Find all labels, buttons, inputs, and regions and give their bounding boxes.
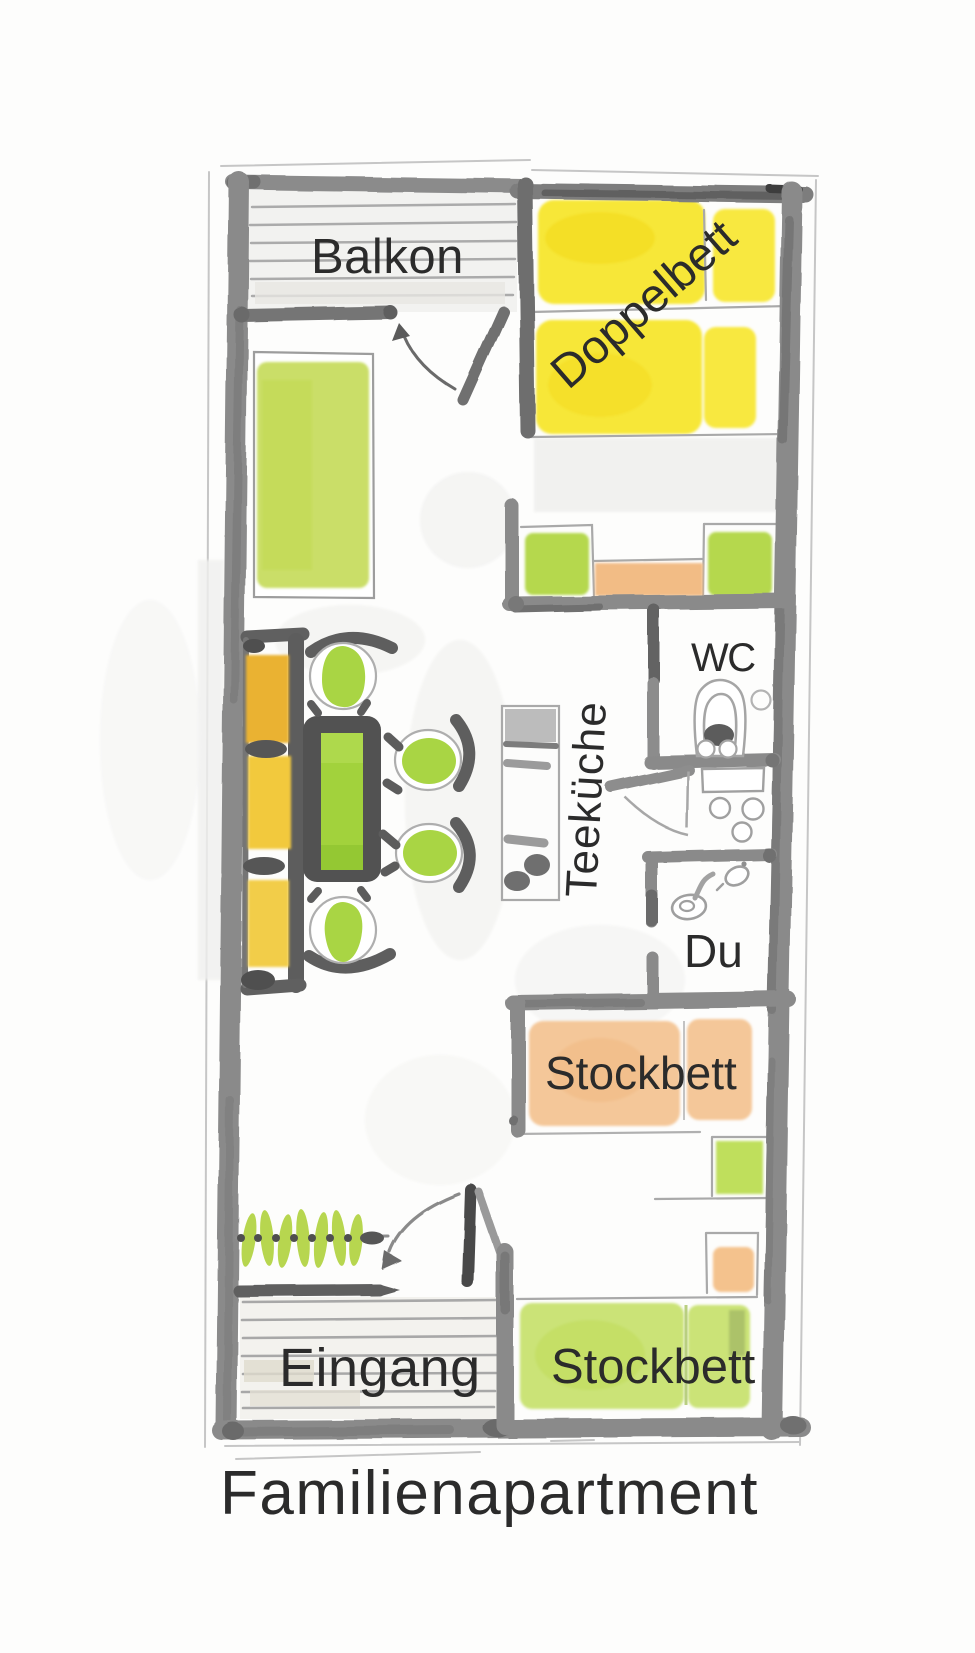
- svg-text:Stockbett: Stockbett: [545, 1047, 737, 1099]
- svg-text:Balkon: Balkon: [311, 230, 464, 284]
- svg-text:WC: WC: [691, 636, 755, 680]
- svg-text:Eingang: Eingang: [279, 1338, 481, 1398]
- svg-text:Teeküche: Teeküche: [557, 700, 616, 899]
- svg-text:Stockbett: Stockbett: [551, 1340, 756, 1394]
- svg-text:Du: Du: [684, 925, 743, 977]
- svg-text:Familienapartment: Familienapartment: [220, 1459, 759, 1528]
